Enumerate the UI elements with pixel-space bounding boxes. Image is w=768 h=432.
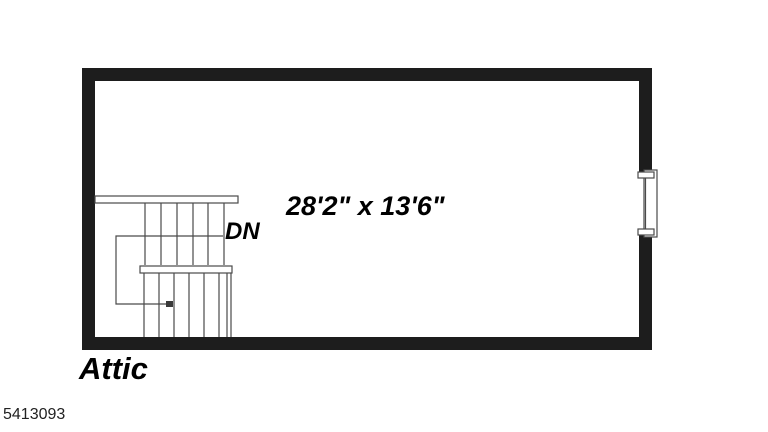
room-name-label: Attic	[79, 351, 148, 387]
room-dimensions-label: 28'2" x 13'6"	[286, 191, 445, 222]
staircase	[95, 196, 238, 337]
stair-treads-lower	[144, 273, 231, 337]
window-sill-bottom	[638, 229, 654, 235]
stair-treads-upper	[145, 203, 224, 265]
window-sill-top	[638, 172, 654, 178]
stair-landing-rail	[140, 266, 232, 273]
stairs-dn-label: DN	[225, 218, 260, 246]
window-icon	[638, 170, 657, 237]
listing-number: 5413093	[3, 406, 65, 424]
stair-upper-rail	[95, 196, 238, 203]
stair-arrowhead	[166, 301, 173, 307]
floor-plan: 28'2" x 13'6" DN Attic 5413093	[0, 0, 768, 432]
